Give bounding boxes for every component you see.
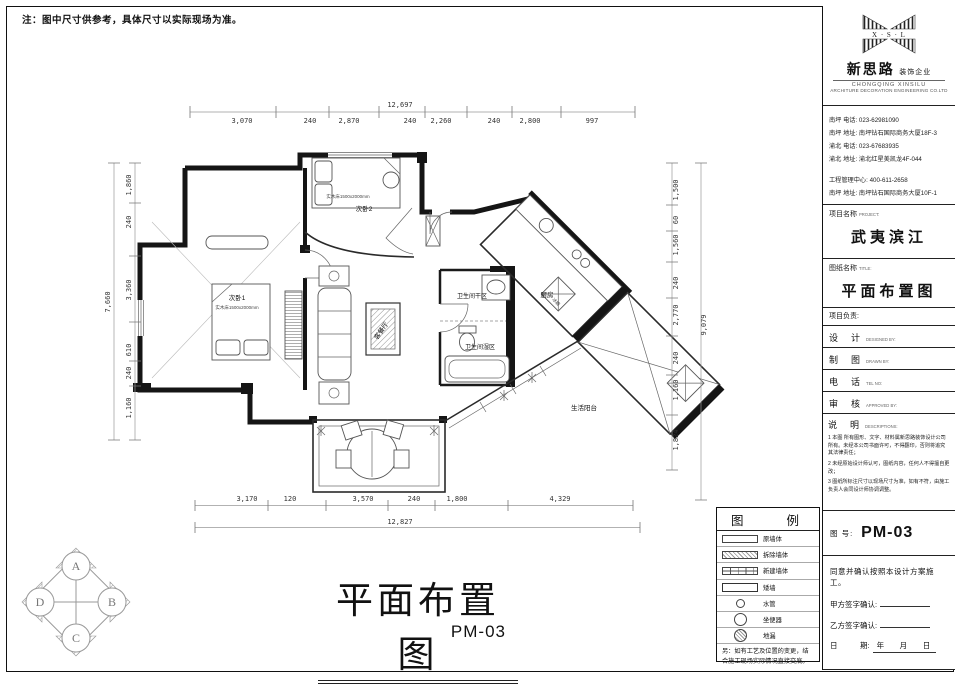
svg-text:3,360: 3,360 [125, 279, 133, 300]
svg-text:240: 240 [304, 117, 317, 125]
legend-item-toilet: 坐便器 [717, 612, 819, 628]
party-a-signature-line [880, 598, 930, 607]
xsl-logo-icon: X · S · L [823, 14, 955, 59]
sheet-name-section: 图纸名称 TITLE: 平面布置图 [823, 259, 955, 308]
svg-text:12,827: 12,827 [387, 518, 412, 526]
svg-text:9,079: 9,079 [700, 314, 708, 335]
toilet-symbol [734, 613, 747, 626]
field-designed-by: 设 计 DESIGNED BY: [823, 326, 955, 348]
project-name: 武夷滨江 [829, 226, 949, 247]
legend-item-demolished-wall: 拆除墙体 [717, 547, 819, 563]
svg-text:1,860: 1,860 [125, 174, 133, 195]
note-2: 2 未经原始设计师认可，图纸内容，任何人不得擅自更改； [828, 461, 950, 476]
floor-plan-drawing: 次卧1 实木床1500x2000mm 实木床1500x2000mm 次卧2 客餐… [100, 90, 720, 545]
party-b-label: 乙方签字确认: [830, 621, 877, 630]
svg-text:1,160: 1,160 [125, 397, 133, 418]
svg-text:240: 240 [408, 495, 421, 503]
room-label-bath-dry: 卫生间干区 [457, 292, 487, 300]
drawing-number-label: 图 号: [830, 528, 853, 539]
company-name-suffix: 装饰企业 [899, 69, 931, 76]
field-drawn-by: 制 图 DRAWN BY: [823, 348, 955, 370]
dims-left: 1,860 240 3,360 610 240 1,160 7,660 [104, 163, 141, 440]
svg-text:240: 240 [672, 352, 680, 365]
svg-text:240: 240 [404, 117, 417, 125]
svg-text:1,500: 1,500 [672, 179, 680, 200]
room-label-kitchen: 厨房 [541, 290, 554, 299]
svg-text:7,660: 7,660 [104, 291, 112, 312]
new-wall-symbol [722, 567, 758, 575]
project-label: 项目名称 [829, 211, 857, 218]
demolished-wall-symbol [722, 551, 758, 559]
svg-text:60: 60 [672, 216, 680, 224]
compass-rose: A B C D [20, 546, 132, 658]
description-label: 说 明 [828, 418, 861, 431]
svg-text:240: 240 [125, 367, 133, 380]
description-notes: 1 本图 所有图形、文字、材料属新思路装饰设计公司所有。未经本公司书面许可，不得… [828, 435, 950, 494]
contact-info: 南坪 电话: 023-62981090 南坪 地址: 南坪钻石国际商务大厦18F… [823, 107, 955, 205]
contact-line: 渝北 地址: 渝北红星美凯龙4F-044 [829, 153, 949, 166]
description-section: 说 明 DESCRIPTIONS: 1 本图 所有图形、文字、材料属新思路装饰设… [823, 414, 955, 511]
legend-item-new-wall: 新建墙体 [717, 563, 819, 579]
drawing-number-section: 图 号: PM-03 [823, 511, 955, 556]
dims-right: 1,500 60 1,560 240 2,770 240 1,160 1,824… [666, 163, 708, 500]
svg-text:3,070: 3,070 [231, 117, 252, 125]
description-label-en: DESCRIPTIONS: [865, 424, 898, 429]
bed1-size-label: 实木床1500x2000mm [215, 304, 259, 311]
svg-text:1,560: 1,560 [672, 234, 680, 255]
water-pipe-symbol [736, 599, 745, 608]
contact-line: 渝北 电话: 023-67683935 [829, 140, 949, 153]
svg-text:2,770: 2,770 [672, 304, 680, 325]
field-approved-by: 审 核 APPROVED BY: [823, 392, 955, 414]
compass-letter-c: C [72, 631, 80, 645]
legend-box: 图 例 原墙体 拆除墙体 新建墙体 矮墙 水管 坐便器 地漏 另：如有工艺及位置… [716, 507, 820, 662]
project-leader-row: 项目负责: [823, 308, 955, 326]
project-name-section: 项目名称 PROJECT: 武夷滨江 [823, 205, 955, 259]
legend-item-floor-drain: 地漏 [717, 628, 819, 644]
sheet-label-en: TITLE: [859, 266, 872, 271]
floor-drain-symbol [734, 629, 747, 642]
svg-text:1,824: 1,824 [672, 429, 680, 450]
company-name-en2: ARCHITURE DECORATION ENGINEERING CO.LTD [823, 88, 955, 93]
room-label-service-balcony: 生活阳台 [571, 403, 597, 412]
contact-line: 南坪 地址: 南坪钻石国际商务大厦10F-1 [829, 187, 949, 200]
party-b-signature-line [880, 619, 930, 628]
bed2-size-label: 实木床1500x2000mm [326, 193, 370, 200]
room-label-bedroom1: 次卧1 [229, 293, 246, 302]
svg-text:3,570: 3,570 [352, 495, 373, 503]
sheet-label: 图纸名称 [829, 265, 857, 272]
note-3: 3 图纸所标注尺寸以现场尺寸为准，如有不符，由施工负责人会同设计师协调调整。 [828, 479, 950, 494]
confirmation-section: 同意并确认按照本设计方案施工。 甲方签字确认: 乙方签字确认: 日 期:年 月 … [823, 556, 955, 670]
contact-line: 南坪 电话: 023-62981090 [829, 114, 949, 127]
legend-item-original-wall: 原墙体 [717, 531, 819, 547]
svg-text:240: 240 [672, 277, 680, 290]
dining-balcony [313, 420, 445, 492]
svg-text:240: 240 [125, 216, 133, 229]
company-name-cn: 新思路 [847, 63, 895, 78]
room-label-bedroom2: 次卧2 [356, 204, 373, 213]
kitchen-counter [516, 195, 622, 301]
svg-text:4,329: 4,329 [549, 495, 570, 503]
sheet-note: 注：图中尺寸供参考，具体尺寸以实际现场为准。 [22, 12, 242, 26]
field-tel: 电 话 TEL NO: [823, 370, 955, 392]
party-a-label: 甲方签字确认: [830, 600, 877, 609]
compass-letter-d: D [36, 595, 45, 609]
toilet [459, 326, 476, 333]
svg-text:X · S · L: X · S · L [872, 31, 906, 39]
confirmation-statement: 同意并确认按照本设计方案施工。 [830, 566, 948, 588]
svg-text:12,697: 12,697 [387, 101, 412, 109]
drawing-main-code: PM-03 [318, 622, 506, 642]
svg-text:240: 240 [488, 117, 501, 125]
original-wall-symbol [722, 535, 758, 543]
contact-line: 南坪 地址: 南坪钻石国际商务大厦18F-3 [829, 127, 949, 140]
legend-item-low-wall: 矮墙 [717, 580, 819, 596]
note-1: 1 本图 所有图形、文字、材料属新思路装饰设计公司所有。未经本公司书面许可，不得… [828, 435, 950, 458]
svg-text:1,800: 1,800 [446, 495, 467, 503]
svg-text:610: 610 [125, 344, 133, 357]
date-label: 日 期: [830, 641, 870, 650]
drawing-number-value: PM-03 [861, 524, 913, 542]
svg-text:2,870: 2,870 [338, 117, 359, 125]
project-label-en: PROJECT: [859, 212, 879, 217]
dims-bottom: 3,170 120 3,570 240 1,800 4,329 12,827 [195, 495, 640, 533]
compass-letter-b: B [108, 595, 116, 609]
svg-text:2,800: 2,800 [519, 117, 540, 125]
legend-title: 图 例 [717, 508, 819, 531]
legend-item-water-pipe: 水管 [717, 596, 819, 612]
title-block: X · S · L 新思路 装饰企业 CHONGQING XINSILU ARC… [822, 6, 955, 670]
svg-text:3,170: 3,170 [236, 495, 257, 503]
svg-text:997: 997 [586, 117, 599, 125]
svg-text:2,260: 2,260 [430, 117, 451, 125]
sheet-name: 平面布置图 [829, 280, 949, 301]
compass-letter-a: A [72, 559, 81, 573]
contact-line: 工程管理中心: 400-611-2658 [829, 174, 949, 187]
svg-text:1,160: 1,160 [672, 379, 680, 400]
legend-note: 另：如有工艺及位置的变更，结合施工现场实际情况直接交底。 [717, 644, 819, 669]
room-label-bath-wet: 卫生间湿区 [465, 343, 495, 351]
company-logo-section: X · S · L 新思路 装饰企业 CHONGQING XINSILU ARC… [823, 6, 955, 106]
svg-text:120: 120 [284, 495, 297, 503]
bathroom [440, 266, 515, 387]
kitchen-wing [479, 192, 726, 439]
date-value: 年 月 日 [873, 640, 937, 653]
dims-top: 12,697 3,070 240 2,870 240 2,260 240 2,8… [190, 101, 635, 125]
low-wall-symbol [722, 583, 758, 592]
wardrobe [285, 291, 302, 359]
